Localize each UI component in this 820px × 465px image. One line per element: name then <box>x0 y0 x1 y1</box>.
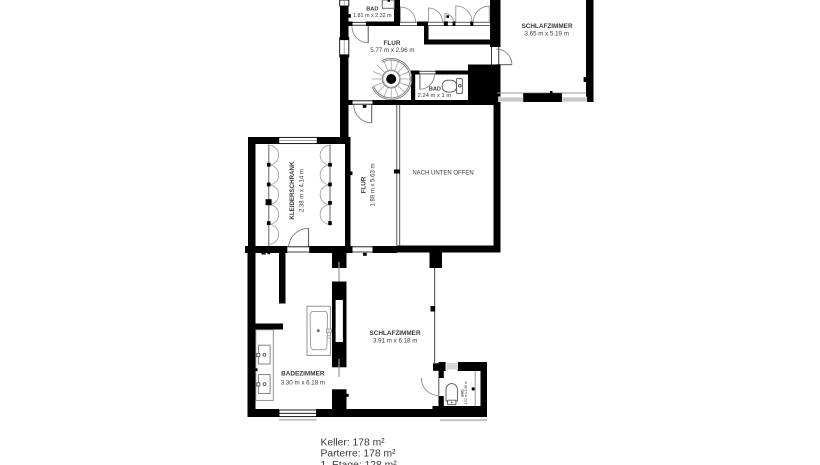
svg-text:2.24 m x 1 m: 2.24 m x 1 m <box>418 93 452 99</box>
svg-text:SCHLAFZIMMER: SCHLAFZIMMER <box>369 330 421 337</box>
svg-text:FLUR: FLUR <box>383 40 400 47</box>
svg-text:BADEZIMMER: BADEZIMMER <box>281 370 325 377</box>
svg-text:5.77 m x 2.96 m: 5.77 m x 2.96 m <box>370 47 414 54</box>
svg-text:KLEIDERSCHRANK: KLEIDERSCHRANK <box>289 161 296 220</box>
svg-text:1. Etage: 128 m²: 1. Etage: 128 m² <box>321 460 398 465</box>
svg-text:SCHLAFZIMMER: SCHLAFZIMMER <box>521 23 573 30</box>
svg-text:1.81 m x 2.32 m: 1.81 m x 2.32 m <box>353 13 392 19</box>
svg-text:NACH UNTEN OFFEN: NACH UNTEN OFFEN <box>412 171 473 177</box>
svg-text:FLUR: FLUR <box>360 176 367 193</box>
svg-text:3.30 m x 6.18 m: 3.30 m x 6.18 m <box>281 380 325 387</box>
svg-text:2.38 m x 4.14 m: 2.38 m x 4.14 m <box>300 169 306 212</box>
svg-text:Keller: 178 m²: Keller: 178 m² <box>321 438 386 449</box>
svg-text:BAD: BAD <box>429 86 441 92</box>
svg-text:1.52 m x 1.68 m: 1.52 m x 1.68 m <box>464 381 468 404</box>
svg-text:BAD: BAD <box>366 6 378 12</box>
svg-text:1.89 m x 5.63 m: 1.89 m x 5.63 m <box>371 163 377 206</box>
svg-text:3.91 m x 6.18 m: 3.91 m x 6.18 m <box>373 337 417 344</box>
svg-text:3.65 m x 5.19 m: 3.65 m x 5.19 m <box>525 30 569 37</box>
svg-text:Parterre: 178 m²: Parterre: 178 m² <box>321 448 397 459</box>
